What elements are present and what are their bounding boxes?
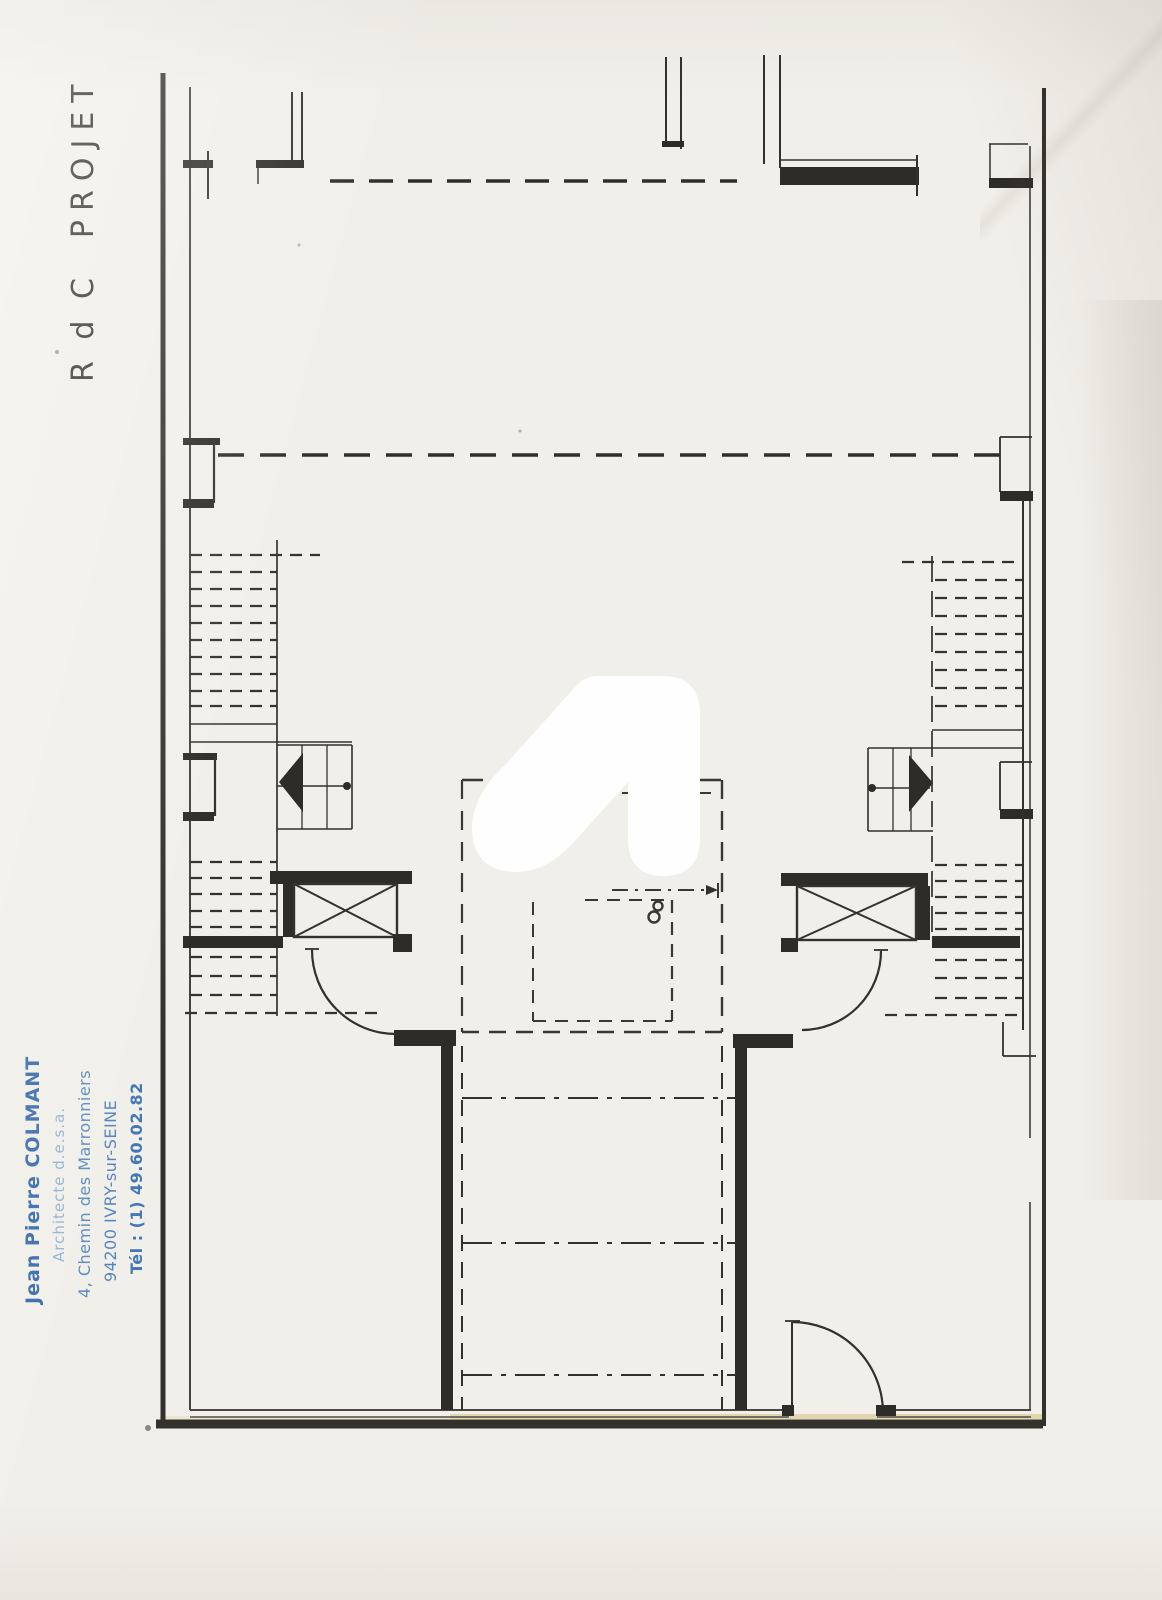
right-staircase [885, 556, 1023, 1015]
pointer-arrowhead [706, 885, 718, 895]
stair-start-dot [868, 784, 876, 792]
top-wall-details [183, 55, 1033, 199]
door-arc-bottom-right [792, 1322, 883, 1412]
left-stair-run [277, 745, 352, 829]
right-shaft-box [781, 873, 930, 952]
left-shaft-box [270, 871, 412, 952]
scanned-floor-plan-sheet: R d CPROJET Jean Pierre COLMANT Architec… [0, 0, 1162, 1600]
corridor-wall-right [735, 1046, 747, 1410]
stair-direction-arrow-left [279, 753, 303, 812]
shaft-x-cross [294, 884, 397, 937]
stamp-city: 94200 IVRY-sur-SEINE [98, 1008, 124, 1304]
stamp-phone: Tél : (1) 49.60.02.82 [124, 1008, 150, 1304]
left-staircase [183, 540, 377, 1016]
floor-plan-drawing [0, 0, 1162, 1600]
project-label-text: PROJET [66, 75, 101, 238]
shaft-x-cross [797, 886, 916, 940]
fixture-symbol [649, 912, 660, 923]
stamp-street: 4, Chemin des Marronniers [72, 1008, 98, 1304]
door-arc-right-hall [802, 951, 881, 1030]
floor-label-text: R d C [66, 272, 101, 382]
door-swings [305, 949, 896, 1416]
stair-direction-arrow-right [909, 755, 933, 812]
stair-start-dot [343, 782, 351, 790]
right-stair-run [868, 748, 933, 831]
door-arc-left-hall [312, 950, 396, 1034]
sheet-title-handwritten: R d CPROJET [66, 46, 112, 382]
architect-stamp: Jean Pierre COLMANT Architecte d.e.s.a. … [20, 1008, 156, 1304]
left-wall-pillars [183, 438, 220, 821]
stamp-profession: Architecte d.e.s.a. [46, 1008, 72, 1304]
watermark-blob [472, 676, 700, 876]
corridor-wall-left [441, 1046, 453, 1410]
fixture-symbol [654, 902, 663, 911]
hall-and-corridor [394, 1030, 793, 1410]
stamp-name: Jean Pierre COLMANT [20, 1008, 46, 1304]
dashed-guide-lines [218, 181, 1000, 455]
